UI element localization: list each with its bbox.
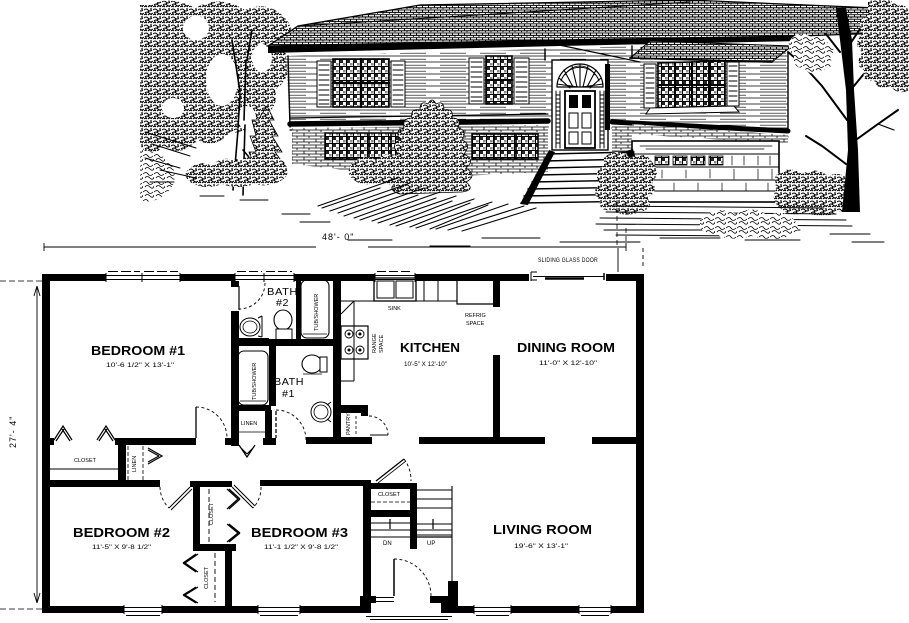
- svg-text:CLOSET: CLOSET: [74, 458, 97, 464]
- svg-text:CLOSET: CLOSET: [209, 502, 215, 525]
- svg-text:TUB/SHOWER: TUB/SHOWER: [252, 363, 258, 400]
- svg-text:DN: DN: [383, 541, 392, 547]
- svg-text:LIVING ROOM: LIVING ROOM: [493, 523, 592, 537]
- svg-text:19'-6" X 13'-1": 19'-6" X 13'-1": [514, 543, 569, 550]
- svg-text:#1: #1: [282, 389, 295, 400]
- svg-text:11'-1 1/2" X 9'-8 1/2": 11'-1 1/2" X 9'-8 1/2": [264, 544, 339, 551]
- svg-text:BEDROOM #1: BEDROOM #1: [91, 344, 185, 358]
- svg-text:10'-6 1/2" X 13'-1": 10'-6 1/2" X 13'-1": [106, 362, 175, 369]
- svg-text:SINK: SINK: [388, 306, 401, 312]
- svg-text:11'-5" X 9'-8 1/2": 11'-5" X 9'-8 1/2": [92, 544, 152, 551]
- svg-text:LINEN: LINEN: [241, 421, 257, 427]
- svg-text:CLOSET: CLOSET: [378, 492, 401, 498]
- svg-text:RANGE: RANGE: [372, 333, 378, 353]
- svg-text:SPACE: SPACE: [466, 321, 485, 327]
- svg-text:BATH: BATH: [267, 287, 298, 298]
- svg-text:10'-5" X 12'-10": 10'-5" X 12'-10": [404, 361, 448, 368]
- svg-text:PANTRY: PANTRY: [346, 413, 352, 435]
- svg-text:CLOSET: CLOSET: [204, 566, 210, 589]
- svg-text:REFRIG: REFRIG: [465, 313, 486, 319]
- svg-text:KITCHEN: KITCHEN: [400, 341, 460, 355]
- svg-text:BEDROOM #2: BEDROOM #2: [73, 526, 170, 540]
- svg-text:BATH: BATH: [274, 377, 304, 388]
- svg-text:TUB/SHOWER: TUB/SHOWER: [314, 294, 320, 331]
- svg-text:48'- 0": 48'- 0": [322, 232, 354, 242]
- svg-text:11'-0" X 12'-10": 11'-0" X 12'-10": [539, 360, 598, 367]
- svg-text:BEDROOM #3: BEDROOM #3: [251, 526, 348, 540]
- svg-text:UP: UP: [427, 541, 435, 547]
- svg-text:27'- 4": 27'- 4": [8, 416, 18, 448]
- svg-text:#2: #2: [276, 298, 289, 309]
- svg-text:LINEN: LINEN: [132, 456, 138, 472]
- svg-text:SLIDING GLASS DOOR: SLIDING GLASS DOOR: [538, 257, 598, 264]
- svg-text:SPACE: SPACE: [379, 334, 385, 353]
- svg-text:DINING ROOM: DINING ROOM: [517, 341, 615, 355]
